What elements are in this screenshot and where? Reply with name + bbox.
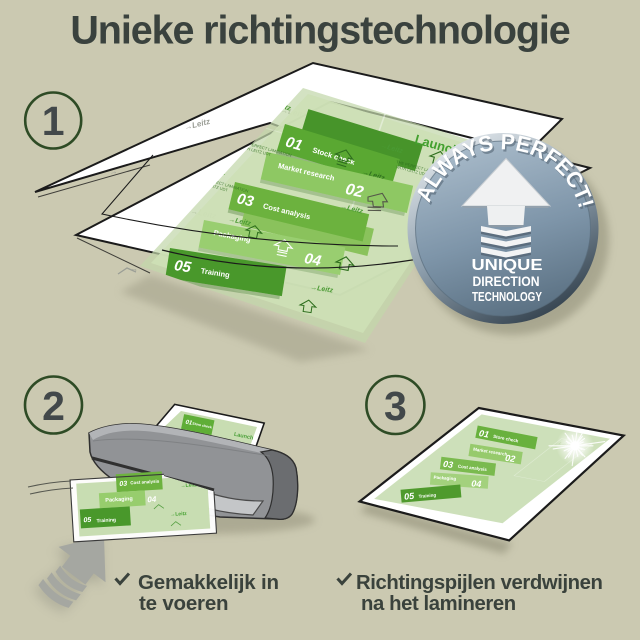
svg-text:03: 03	[443, 459, 454, 470]
svg-text:05: 05	[173, 257, 193, 277]
svg-text:01: 01	[478, 428, 490, 440]
svg-text:04: 04	[471, 478, 482, 489]
svg-text:Gemakkelijk in: Gemakkelijk in	[138, 571, 279, 594]
svg-text:05: 05	[404, 491, 416, 502]
svg-text:TECHNOLOGY: TECHNOLOGY	[472, 289, 542, 304]
svg-text:Training: Training	[96, 517, 116, 524]
svg-text:Unieke richtingstechnologie: Unieke richtingstechnologie	[70, 9, 569, 53]
svg-text:→Leitz: →Leitz	[170, 511, 187, 518]
svg-text:03: 03	[119, 481, 127, 488]
svg-text:UNIQUE: UNIQUE	[472, 257, 543, 274]
svg-text:na het lamineren: na het lamineren	[361, 593, 516, 615]
svg-text:04: 04	[147, 495, 157, 505]
svg-text:te voeren: te voeren	[139, 592, 228, 615]
svg-text:05: 05	[83, 517, 91, 524]
svg-text:Richtingspijlen verdwijnen: Richtingspijlen verdwijnen	[356, 572, 603, 594]
svg-text:02: 02	[504, 453, 515, 464]
svg-text:3: 3	[384, 383, 407, 429]
svg-text:DIRECTION: DIRECTION	[473, 273, 540, 289]
svg-text:1: 1	[42, 98, 65, 144]
svg-text:2: 2	[42, 383, 65, 429]
